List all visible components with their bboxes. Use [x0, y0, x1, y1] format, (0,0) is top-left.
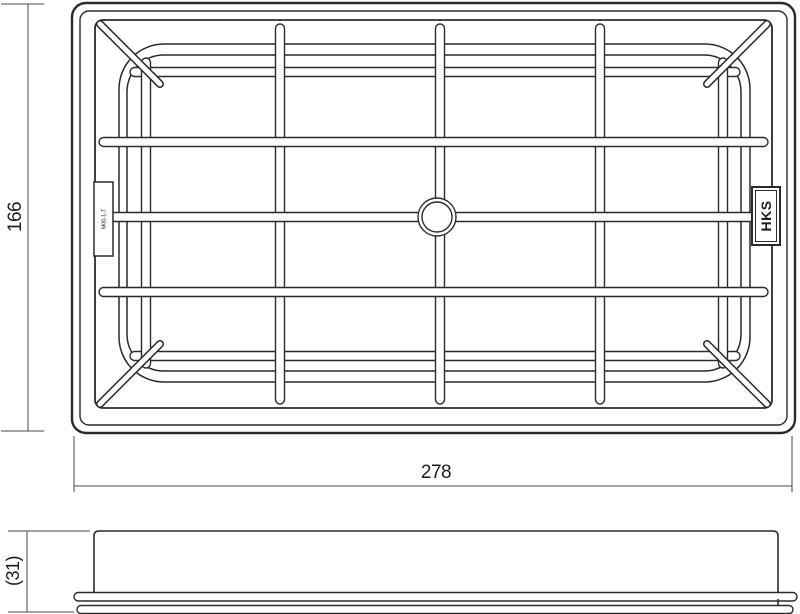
dimension-height-label: 166 [5, 202, 26, 232]
grid-bar-horizontal [99, 288, 768, 297]
side-view-gasket-strip-upper [74, 593, 797, 602]
filter-side-view [74, 531, 797, 614]
dimension-side-height-label: (31) [3, 556, 23, 586]
dimension-height-166: 166 [1, 4, 44, 431]
part-code-text: M00-1-T [102, 208, 108, 229]
dimension-width-label: 278 [421, 462, 451, 483]
center-hole-inner-circle [422, 202, 452, 232]
side-view-gasket-strip-lower [77, 606, 793, 614]
brand-logo-text: HKS [758, 200, 774, 231]
grid-bar-horizontal [99, 138, 768, 147]
dimension-width-278: 278 [74, 436, 792, 492]
side-view-body-outline [94, 531, 778, 593]
filter-top-view: M00-1-T HKS [72, 3, 795, 433]
technical-drawing-canvas: M00-1-T HKS 166 278 (31) [0, 0, 800, 614]
brand-badge: HKS [752, 187, 780, 245]
part-code-tab: M00-1-T [94, 182, 113, 256]
